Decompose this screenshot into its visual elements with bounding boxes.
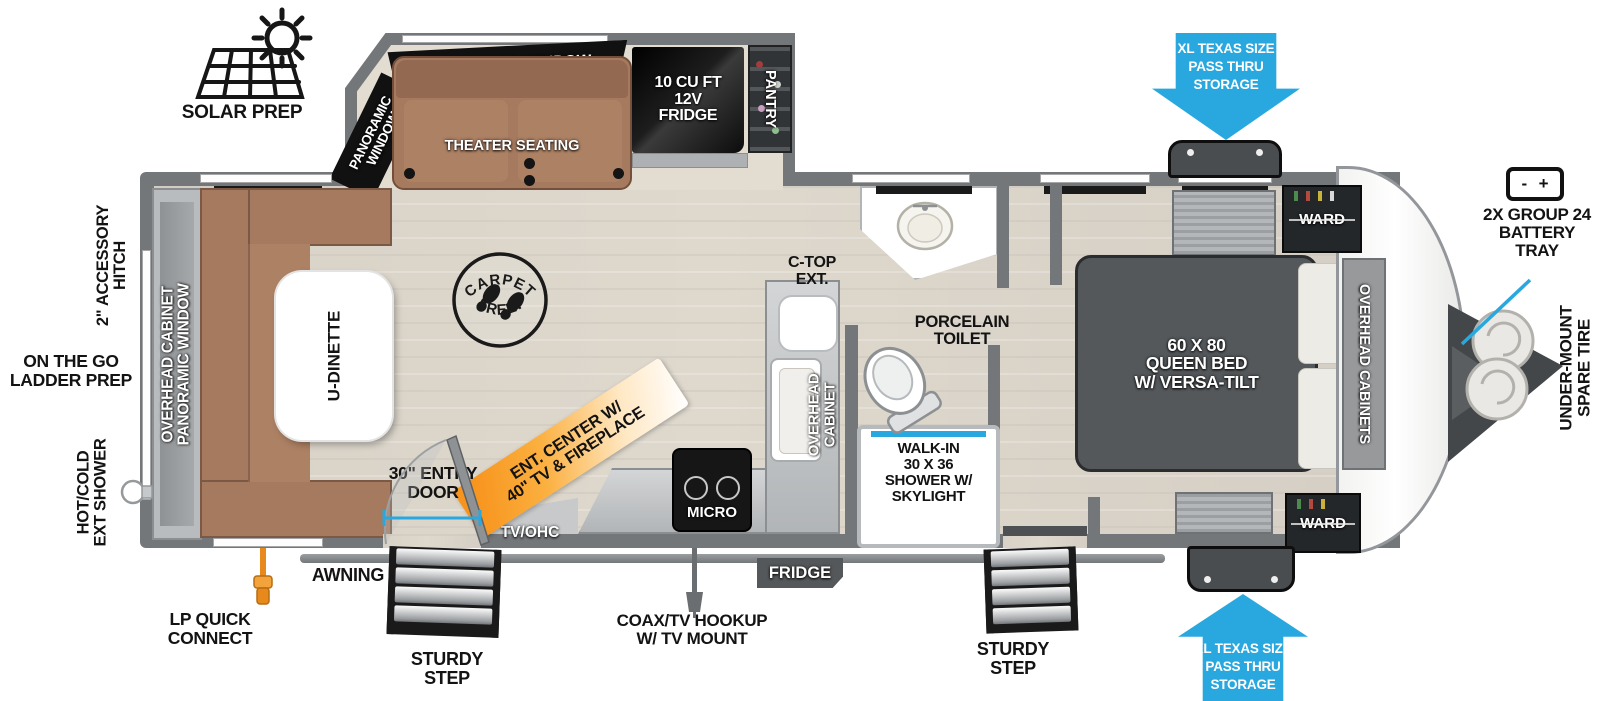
sofa-cupholder — [613, 168, 624, 179]
pass-thru-label: STORAGE — [1178, 676, 1308, 694]
pass-thru-hatch-top — [1168, 140, 1282, 178]
walk-in-shower: WALK-IN 30 X 36 SHOWER W/ SKYLIGHT — [857, 425, 1000, 548]
battery-callout-line — [1462, 280, 1530, 344]
window — [213, 538, 323, 547]
propane-tank — [1473, 311, 1533, 371]
bedroom-wall — [1088, 497, 1100, 534]
micro-label: MICRO — [674, 504, 750, 521]
sturdy-step-right-label: STURDYSTEP — [958, 640, 1068, 678]
pass-thru-label: PASS THRU — [1178, 658, 1308, 676]
ext-shower-label: HOT/COLDEXT SHOWER — [76, 438, 111, 546]
queen-bed-label: 60 X 80 QUEEN BED W/ VERSA-TILT — [1134, 336, 1258, 392]
shower-skylight — [871, 431, 986, 437]
clothes-tick — [1297, 499, 1301, 509]
screw — [1187, 149, 1194, 156]
sturdy-step-left-label: STURDYSTEP — [392, 650, 502, 688]
theater-seating-sofa: THEATER SEATING — [392, 56, 632, 190]
spare-tire-label-wrap: UNDER-MOUNTSPARE TIRE — [1548, 292, 1600, 444]
accessory-hitch-label-wrap: 2" ACCESSORYHITCH — [84, 196, 142, 334]
exterior-fridge-label: FRIDGE — [769, 564, 831, 583]
window-sill — [876, 186, 972, 194]
door-threshold — [1003, 526, 1087, 536]
screw — [1256, 149, 1263, 156]
wardrobe-bottom: WARD — [1285, 493, 1361, 553]
kitchen-cabinet-label-wrap: OVERHEAD CABINET — [796, 350, 848, 480]
clothes-tick — [1306, 191, 1310, 201]
fridge-12v: 10 CU FT 12V FRIDGE — [632, 47, 744, 153]
u-dinette-label-wrap: U-DINETTE — [276, 272, 392, 440]
ext-shower-label-wrap: HOT/COLDEXT SHOWER — [64, 418, 122, 566]
solar-prep-icon — [198, 10, 310, 97]
hanger-rod — [1291, 523, 1354, 525]
spare-tire-label: UNDER-MOUNTSPARE TIRE — [1558, 305, 1594, 430]
bedroom-dresser-top — [1172, 190, 1276, 256]
kitchen-cabinet-label: OVERHEAD CABINET — [806, 374, 838, 457]
battery-icon: - + — [1506, 167, 1564, 201]
window — [200, 174, 332, 183]
rear-cabinet-label: OVERHEAD CABINET PANORAMIC WINDOW — [161, 283, 194, 445]
slideout-window-strip — [402, 35, 608, 43]
battery-minus: - — [1521, 174, 1527, 194]
solar-prep-label: SOLAR PREP — [176, 103, 308, 123]
porcelain-toilet-label: PORCELAINTOILET — [902, 314, 1022, 349]
burner — [684, 476, 708, 500]
fridge-12v-label: 10 CU FT 12V FRIDGE — [655, 75, 722, 126]
lp-quick-connect-label: LP QUICKCONNECT — [128, 610, 292, 647]
battery-plus: + — [1539, 174, 1549, 194]
sofa-cupholder — [524, 175, 535, 186]
window — [852, 174, 970, 183]
lp-quick-connect-icon — [254, 548, 272, 604]
awning-label: AWNING — [300, 566, 396, 585]
pantry-label: PANTRY — [762, 70, 778, 128]
clothes-tick — [1330, 191, 1334, 201]
clothes-tick — [1309, 499, 1313, 509]
pass-thru-label: XL TEXAS SIZE — [1152, 40, 1300, 58]
screw — [1204, 576, 1211, 583]
hanger-rod — [1289, 219, 1356, 221]
pass-thru-arrow-top: XL TEXAS SIZE PASS THRU STORAGE — [1152, 33, 1300, 140]
floorplan-canvas: PANORAMIC WINDOW PANORAMIC WINDOW THEATE… — [0, 0, 1600, 701]
propane-tank — [1467, 359, 1527, 419]
fridge-base — [632, 153, 748, 168]
sofa-cupholder — [404, 168, 415, 179]
queen-bed: 60 X 80 QUEEN BED W/ VERSA-TILT — [1075, 255, 1318, 472]
burner — [716, 476, 740, 500]
u-dinette-label: U-DINETTE — [324, 311, 344, 402]
wardrobe-top: WARD — [1282, 185, 1362, 253]
accessory-hitch-label: 2" ACCESSORYHITCH — [96, 204, 131, 325]
c-top-ext-label: C-TOPEXT. — [780, 255, 844, 289]
exterior-fridge-tab: FRIDGE — [757, 558, 843, 588]
entry-door-label: 30" ENTRYDOOR — [374, 464, 492, 501]
microwave-stove: MICRO — [672, 448, 752, 532]
ladder-prep-label: ON THE GOLADDER PREP — [0, 352, 142, 389]
bath-wall — [997, 186, 1009, 288]
bedroom-dresser-bottom — [1175, 492, 1273, 534]
u-dinette-bench-bottom — [200, 480, 392, 538]
theater-seating-label: THEATER SEATING — [394, 138, 630, 154]
c-top-extension — [778, 295, 838, 352]
pass-thru-label: PASS THRU — [1152, 58, 1300, 76]
clothes-tick — [1321, 499, 1325, 509]
pass-thru-hatch-bottom — [1187, 546, 1295, 592]
coax-label: COAX/TV HOOKUPW/ TV MOUNT — [586, 612, 798, 648]
window — [1040, 174, 1150, 183]
clothes-tick — [1318, 191, 1322, 201]
shower-label: WALK-IN 30 X 36 SHOWER W/ SKYLIGHT — [861, 441, 996, 505]
pass-thru-label: STORAGE — [1152, 76, 1300, 94]
clothes-tick — [1294, 191, 1298, 201]
overhead-cabinets-label: OVERHEAD CABINETS — [1356, 284, 1372, 444]
bath-wall — [988, 345, 1000, 432]
sturdy-step-right — [984, 546, 1079, 633]
a-frame-tongue — [1448, 304, 1563, 462]
pass-thru-arrow-bottom: XL TEXAS SIZE PASS THRU STORAGE — [1178, 594, 1308, 701]
battery-tray-label: 2X GROUP 24 BATTERY TRAY — [1474, 206, 1600, 260]
pantry-label-wrap: PANTRY — [748, 45, 792, 153]
overhead-cabinets-label-wrap: OVERHEAD CABINETS — [1342, 258, 1386, 470]
bedroom-wall — [1050, 186, 1062, 285]
sofa-backrest — [396, 60, 628, 98]
sofa-cupholder — [524, 158, 535, 169]
pass-thru-label: XL TEXAS SIZE — [1178, 640, 1308, 658]
screw — [1271, 576, 1278, 583]
sturdy-step-left — [386, 546, 501, 638]
